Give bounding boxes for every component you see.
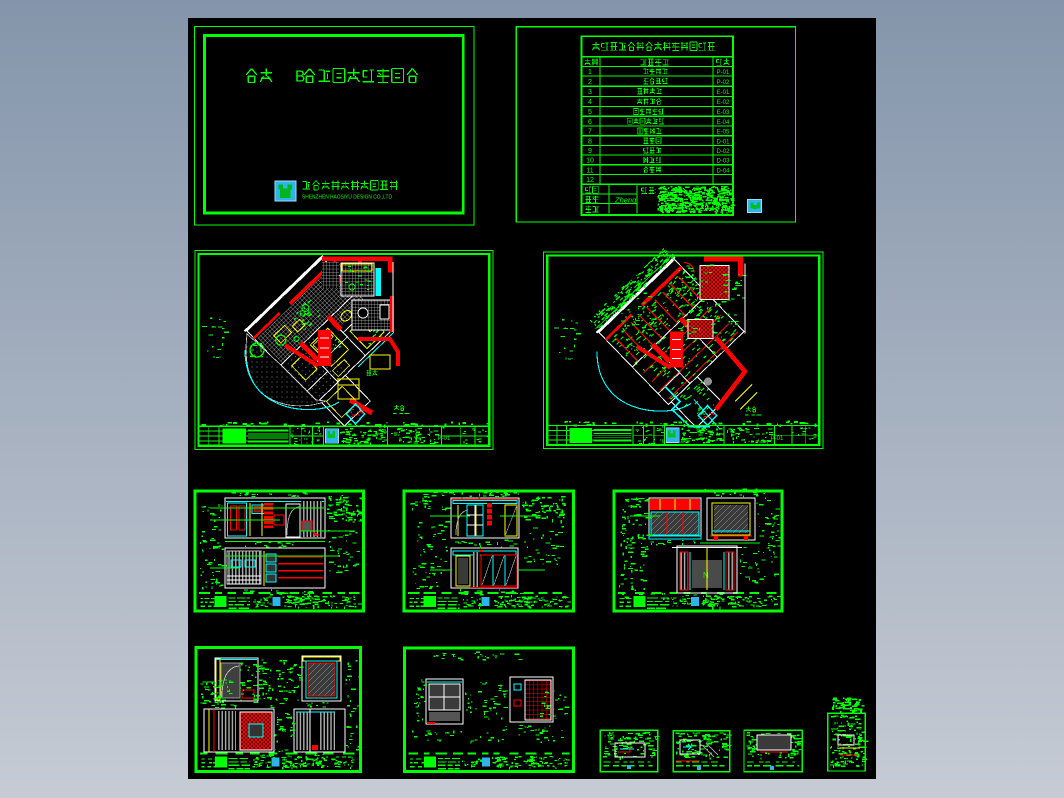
svg-text:P-01: P-01 [438, 436, 451, 442]
svg-text:11: 11 [586, 167, 593, 174]
svg-text:E-05: E-05 [717, 130, 730, 136]
svg-text:E-02: E-02 [717, 100, 730, 106]
svg-text:10: 10 [586, 158, 594, 165]
svg-text:7: 7 [588, 129, 592, 136]
svg-text:P-01: P-01 [717, 70, 730, 76]
svg-text:N: N [703, 571, 709, 580]
svg-text:D-02: D-02 [716, 149, 730, 155]
svg-text:SHENZHEN HAOSIYU DESIGN CO.,LT: SHENZHEN HAOSIYU DESIGN CO.,LTD [302, 195, 392, 201]
svg-text:4: 4 [588, 99, 592, 106]
svg-text:Zheng: Zheng [614, 196, 637, 205]
svg-text:P-01: P-01 [771, 436, 784, 442]
svg-text:6: 6 [588, 119, 592, 126]
svg-text:P-02: P-02 [717, 80, 730, 86]
svg-text:E-01: E-01 [717, 90, 730, 96]
svg-text:2: 2 [588, 79, 592, 86]
svg-text:D-04: D-04 [716, 168, 730, 174]
svg-text:1: 1 [588, 69, 592, 76]
svg-text:8: 8 [588, 138, 592, 145]
svg-text:9: 9 [588, 148, 592, 155]
svg-text:B: B [295, 69, 305, 86]
svg-text:12: 12 [586, 177, 594, 184]
svg-text:3: 3 [588, 89, 592, 96]
svg-text:D-03: D-03 [716, 159, 730, 165]
svg-text:D-01: D-01 [716, 139, 730, 145]
svg-text::: : [655, 188, 657, 195]
svg-text:E-03: E-03 [717, 110, 730, 116]
svg-text:E-04: E-04 [717, 120, 730, 126]
svg-text:5: 5 [588, 109, 592, 116]
